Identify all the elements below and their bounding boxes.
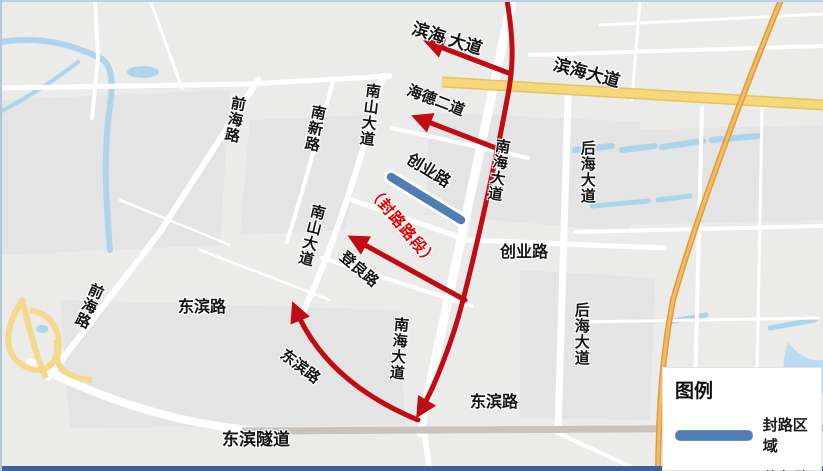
road-label-houhai-mid: 后海大道 (572, 302, 588, 366)
road-closure-map: 滨海 大道 滨海大道 海德二道 前海路 南新路 南山大道 创业路 （封路路段） … (0, 0, 823, 471)
road-label-chuangye-right: 创业路 (500, 245, 548, 262)
legend-item-label: 绕行路线 (764, 467, 821, 471)
legend-panel: 图例 封路区域 绕行路线 (662, 367, 822, 471)
map-left-edge (0, 0, 2, 471)
road-label-dongbin-right: 东滨路 (470, 395, 518, 412)
legend-title: 图例 (675, 376, 821, 403)
map-top-edge (0, 0, 823, 2)
road-label-dongbin-tunnel: 东滨隧道 (222, 431, 290, 449)
legend-item-label: 封路区域 (763, 414, 821, 456)
legend-item-detour: 绕行路线 (675, 467, 821, 471)
closed-road-symbol (675, 430, 753, 441)
road-label-houhai-top: 后海大道 (578, 140, 594, 204)
road-label-dongbin-left: 东滨路 (178, 300, 226, 317)
legend-item-closed-road: 封路区域 (675, 414, 821, 456)
